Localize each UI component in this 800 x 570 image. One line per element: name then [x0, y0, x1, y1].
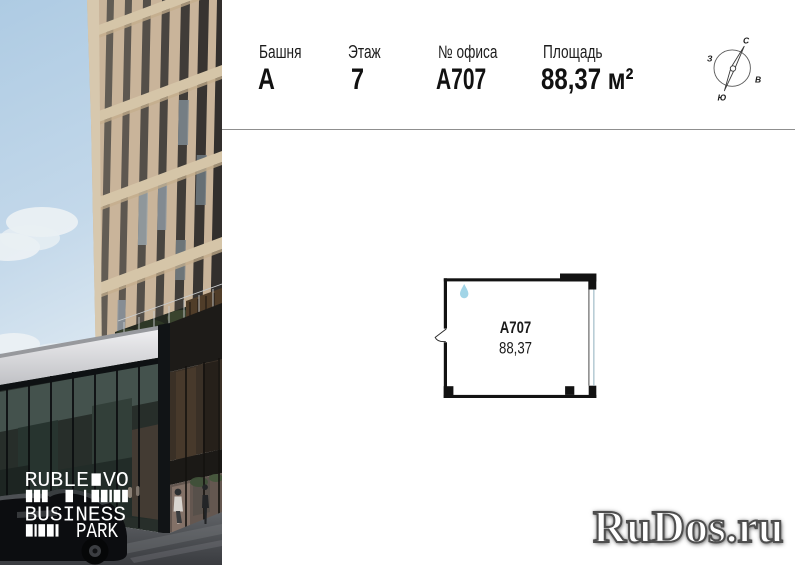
svg-text:Ю: Ю [718, 93, 727, 103]
svg-text:RUBLE: RUBLE [25, 469, 90, 493]
svg-text:В: В [755, 75, 761, 85]
svg-text:88,37: 88,37 [499, 340, 532, 358]
svg-text:А707: А707 [500, 319, 532, 337]
svg-text:PARK: PARK [76, 520, 118, 544]
svg-text:З: З [707, 54, 713, 64]
svg-text:VO: VO [103, 469, 129, 493]
svg-text:С: С [743, 36, 750, 46]
